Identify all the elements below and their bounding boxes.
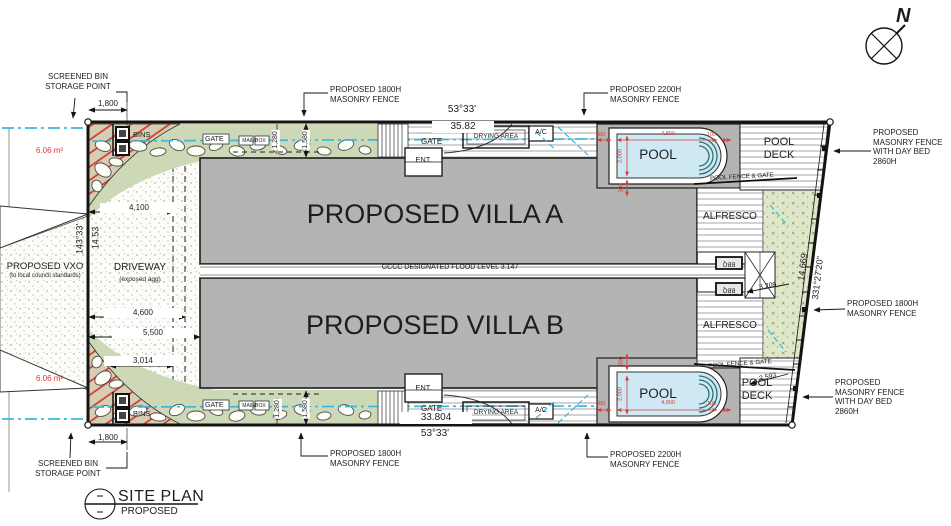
fence-1800-callout-bottom: PROPOSED 1800H MASONRY FENCE xyxy=(330,449,401,468)
north-label: N xyxy=(896,4,910,28)
dim-pool-off300-top: 300 xyxy=(596,132,605,139)
dim-pool-width-bottom: 2,000 xyxy=(618,387,625,401)
bbq-label-bottom: BBQ xyxy=(723,285,736,292)
dim-bottom-bearing: 53°33' xyxy=(400,428,470,440)
driveway-label: DRIVEWAY xyxy=(98,262,182,274)
drying-area-label-bottom: DRYING AREA xyxy=(463,409,529,417)
north-arrow xyxy=(866,25,905,64)
dim-left-bearing: 143°33' xyxy=(75,224,86,254)
dim-top-bearing: 53°33' xyxy=(432,104,492,116)
vxo-note: (to local council standards) xyxy=(0,273,90,280)
dim-1580-top: 1,580 xyxy=(302,130,310,150)
dim-left-length: 14.53 xyxy=(91,227,102,250)
dim-pool-off300v-top: 300 xyxy=(619,183,626,192)
flood-level-note: GCCC DESIGNATED FLOOD LEVEL 3.147 xyxy=(280,264,620,272)
dim-4100: 4,100 xyxy=(100,203,178,213)
drying-area-label-top: DRYING AREA xyxy=(463,133,529,141)
sheet-subtitle: PROPOSED xyxy=(121,506,178,518)
dim-pool-length-bottom: 4,800 xyxy=(650,400,686,407)
dim-1800-top: 1,800 xyxy=(86,99,130,109)
dim-pool-off100-top: 100 xyxy=(707,132,716,139)
site-plan-page: N SCREENED BIN STORAGE POINT SCREENED BI… xyxy=(0,0,951,526)
dim-1280-bottom: 1,280 xyxy=(274,399,282,419)
dim-pool-length-top: 4,800 xyxy=(650,131,686,138)
bin-area-bottom: 6.06 m² xyxy=(36,374,63,384)
dim-3014: 3,014 xyxy=(104,356,182,366)
dim-4600: 4,600 xyxy=(104,308,182,318)
gate-label-top-center: GATE xyxy=(421,137,442,147)
dim-top-length: 35.82 xyxy=(432,121,494,133)
fence-1800-callout-top: PROPOSED 1800H MASONRY FENCE xyxy=(330,85,401,104)
vxo-label: PROPOSED VXO xyxy=(0,261,90,272)
screened-bin-callout-top: SCREENED BIN STORAGE POINT xyxy=(18,72,138,91)
fence-daybed-callout-bottom: PROPOSED MASONRY FENCE WITH DAY BED 2860… xyxy=(835,378,905,416)
fence-2200-callout-bottom: PROPOSED 2200H MASONRY FENCE xyxy=(610,450,681,469)
mail-box-label-bottom: MAIL BOX xyxy=(239,403,269,409)
fence-daybed-callout-top: PROPOSED MASONRY FENCE WITH DAY BED 2860… xyxy=(873,128,943,166)
dim-5500: 5,500 xyxy=(112,328,194,338)
sheet-title: SITE PLAN xyxy=(118,487,204,506)
fence-2200-callout-top: PROPOSED 2200H MASONRY FENCE xyxy=(610,85,681,104)
alfresco-label-bottom: ALFRESCO xyxy=(694,320,766,332)
bins-label-bottom: BINS xyxy=(133,409,151,418)
villa-b-label: PROPOSED VILLA B xyxy=(230,309,640,341)
pool-label-top: POOL xyxy=(618,147,698,163)
dim-1580-bottom: 1,580 xyxy=(302,399,310,419)
alfresco-label-top: ALFRESCO xyxy=(694,211,766,223)
driveway-note: (exposed agg) xyxy=(98,276,182,284)
dim-pool-width-top: 2,000 xyxy=(618,149,625,163)
mail-box-label-top: MAIL BOX xyxy=(239,138,269,144)
ent-label-top: ENT. xyxy=(405,155,442,164)
dim-pool-off100-bottom: 100 xyxy=(707,401,716,408)
gate-label-bottom-left: GATE xyxy=(205,402,224,410)
villa-a-label: PROPOSED VILLA A xyxy=(230,198,640,230)
bins-label-top: BINS xyxy=(133,130,151,139)
dim-pool-off300v-bottom: 300 xyxy=(619,356,626,365)
bin-area-top: 6.06 m² xyxy=(36,146,63,156)
pool-deck-label-top: POOL DECK xyxy=(748,136,810,162)
ent-label-bottom: ENT. xyxy=(405,383,442,392)
dim-pool-off300-bottom: 300 xyxy=(596,401,605,408)
dim-bottom-length: 33.804 xyxy=(400,412,472,424)
gate-label-top-left: GATE xyxy=(205,136,224,144)
dim-1280-top: 1,280 xyxy=(272,130,280,150)
ac-label-bottom: A/C xyxy=(529,407,553,415)
bbq-label-top: BBQ xyxy=(723,259,736,266)
ac-label-top: A/C xyxy=(529,129,553,137)
screened-bin-callout-bottom: SCREENED BIN STORAGE POINT xyxy=(8,459,128,478)
pool-deck-label-bottom: POOL DECK xyxy=(726,377,788,403)
fence-1800-callout-right: PROPOSED 1800H MASONRY FENCE xyxy=(847,299,918,318)
dim-1800-bottom: 1,800 xyxy=(86,433,130,443)
